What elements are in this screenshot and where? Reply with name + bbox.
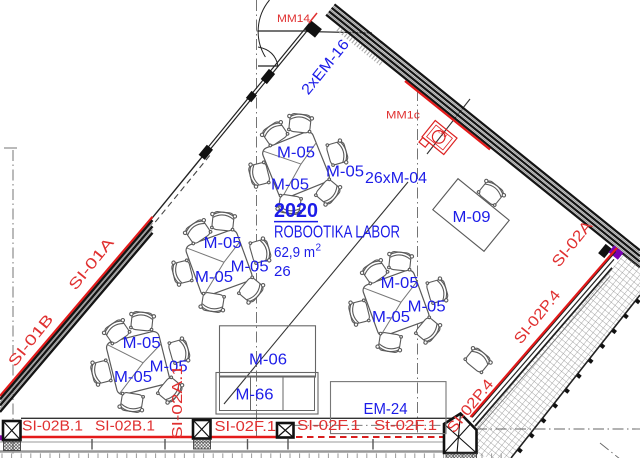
svg-text:SI-02F.1: SI-02F.1 xyxy=(215,419,277,435)
svg-text:M-06: M-06 xyxy=(249,352,287,369)
svg-text:62,9 m: 62,9 m xyxy=(274,244,315,261)
svg-text:SI-02F.1: SI-02F.1 xyxy=(297,418,360,434)
svg-text:26xM-04: 26xM-04 xyxy=(365,170,427,187)
svg-text:2020: 2020 xyxy=(274,200,318,222)
svg-text:26: 26 xyxy=(274,263,291,280)
svg-text:ROBOOTIKA LABOR: ROBOOTIKA LABOR xyxy=(274,222,400,242)
svg-text:SI-02B.1: SI-02B.1 xyxy=(22,419,83,435)
svg-text:M-05: M-05 xyxy=(326,164,364,181)
svg-text:M-66: M-66 xyxy=(236,387,274,404)
svg-text:M-05: M-05 xyxy=(408,299,446,316)
svg-text:SI-02B.1: SI-02B.1 xyxy=(95,419,155,435)
svg-text:MM1c: MM1c xyxy=(386,110,421,122)
svg-text:M-05: M-05 xyxy=(195,269,233,286)
svg-text:M-05: M-05 xyxy=(277,145,315,162)
svg-text:M-05: M-05 xyxy=(231,259,269,276)
svg-text:EM-24: EM-24 xyxy=(364,401,408,418)
svg-text:M-05: M-05 xyxy=(114,369,152,386)
svg-text:M-05: M-05 xyxy=(271,177,309,194)
svg-text:SI-02A.1: SI-02A.1 xyxy=(169,365,186,439)
svg-text:M-05: M-05 xyxy=(372,309,410,326)
svg-text:M-09: M-09 xyxy=(453,209,491,226)
svg-text:MM14: MM14 xyxy=(277,13,310,25)
svg-text:2: 2 xyxy=(316,243,322,254)
svg-text:St-02F.1: St-02F.1 xyxy=(374,418,437,434)
svg-text:M-05: M-05 xyxy=(204,235,242,252)
svg-text:M-05: M-05 xyxy=(381,275,419,292)
svg-text:M-05: M-05 xyxy=(123,335,161,352)
